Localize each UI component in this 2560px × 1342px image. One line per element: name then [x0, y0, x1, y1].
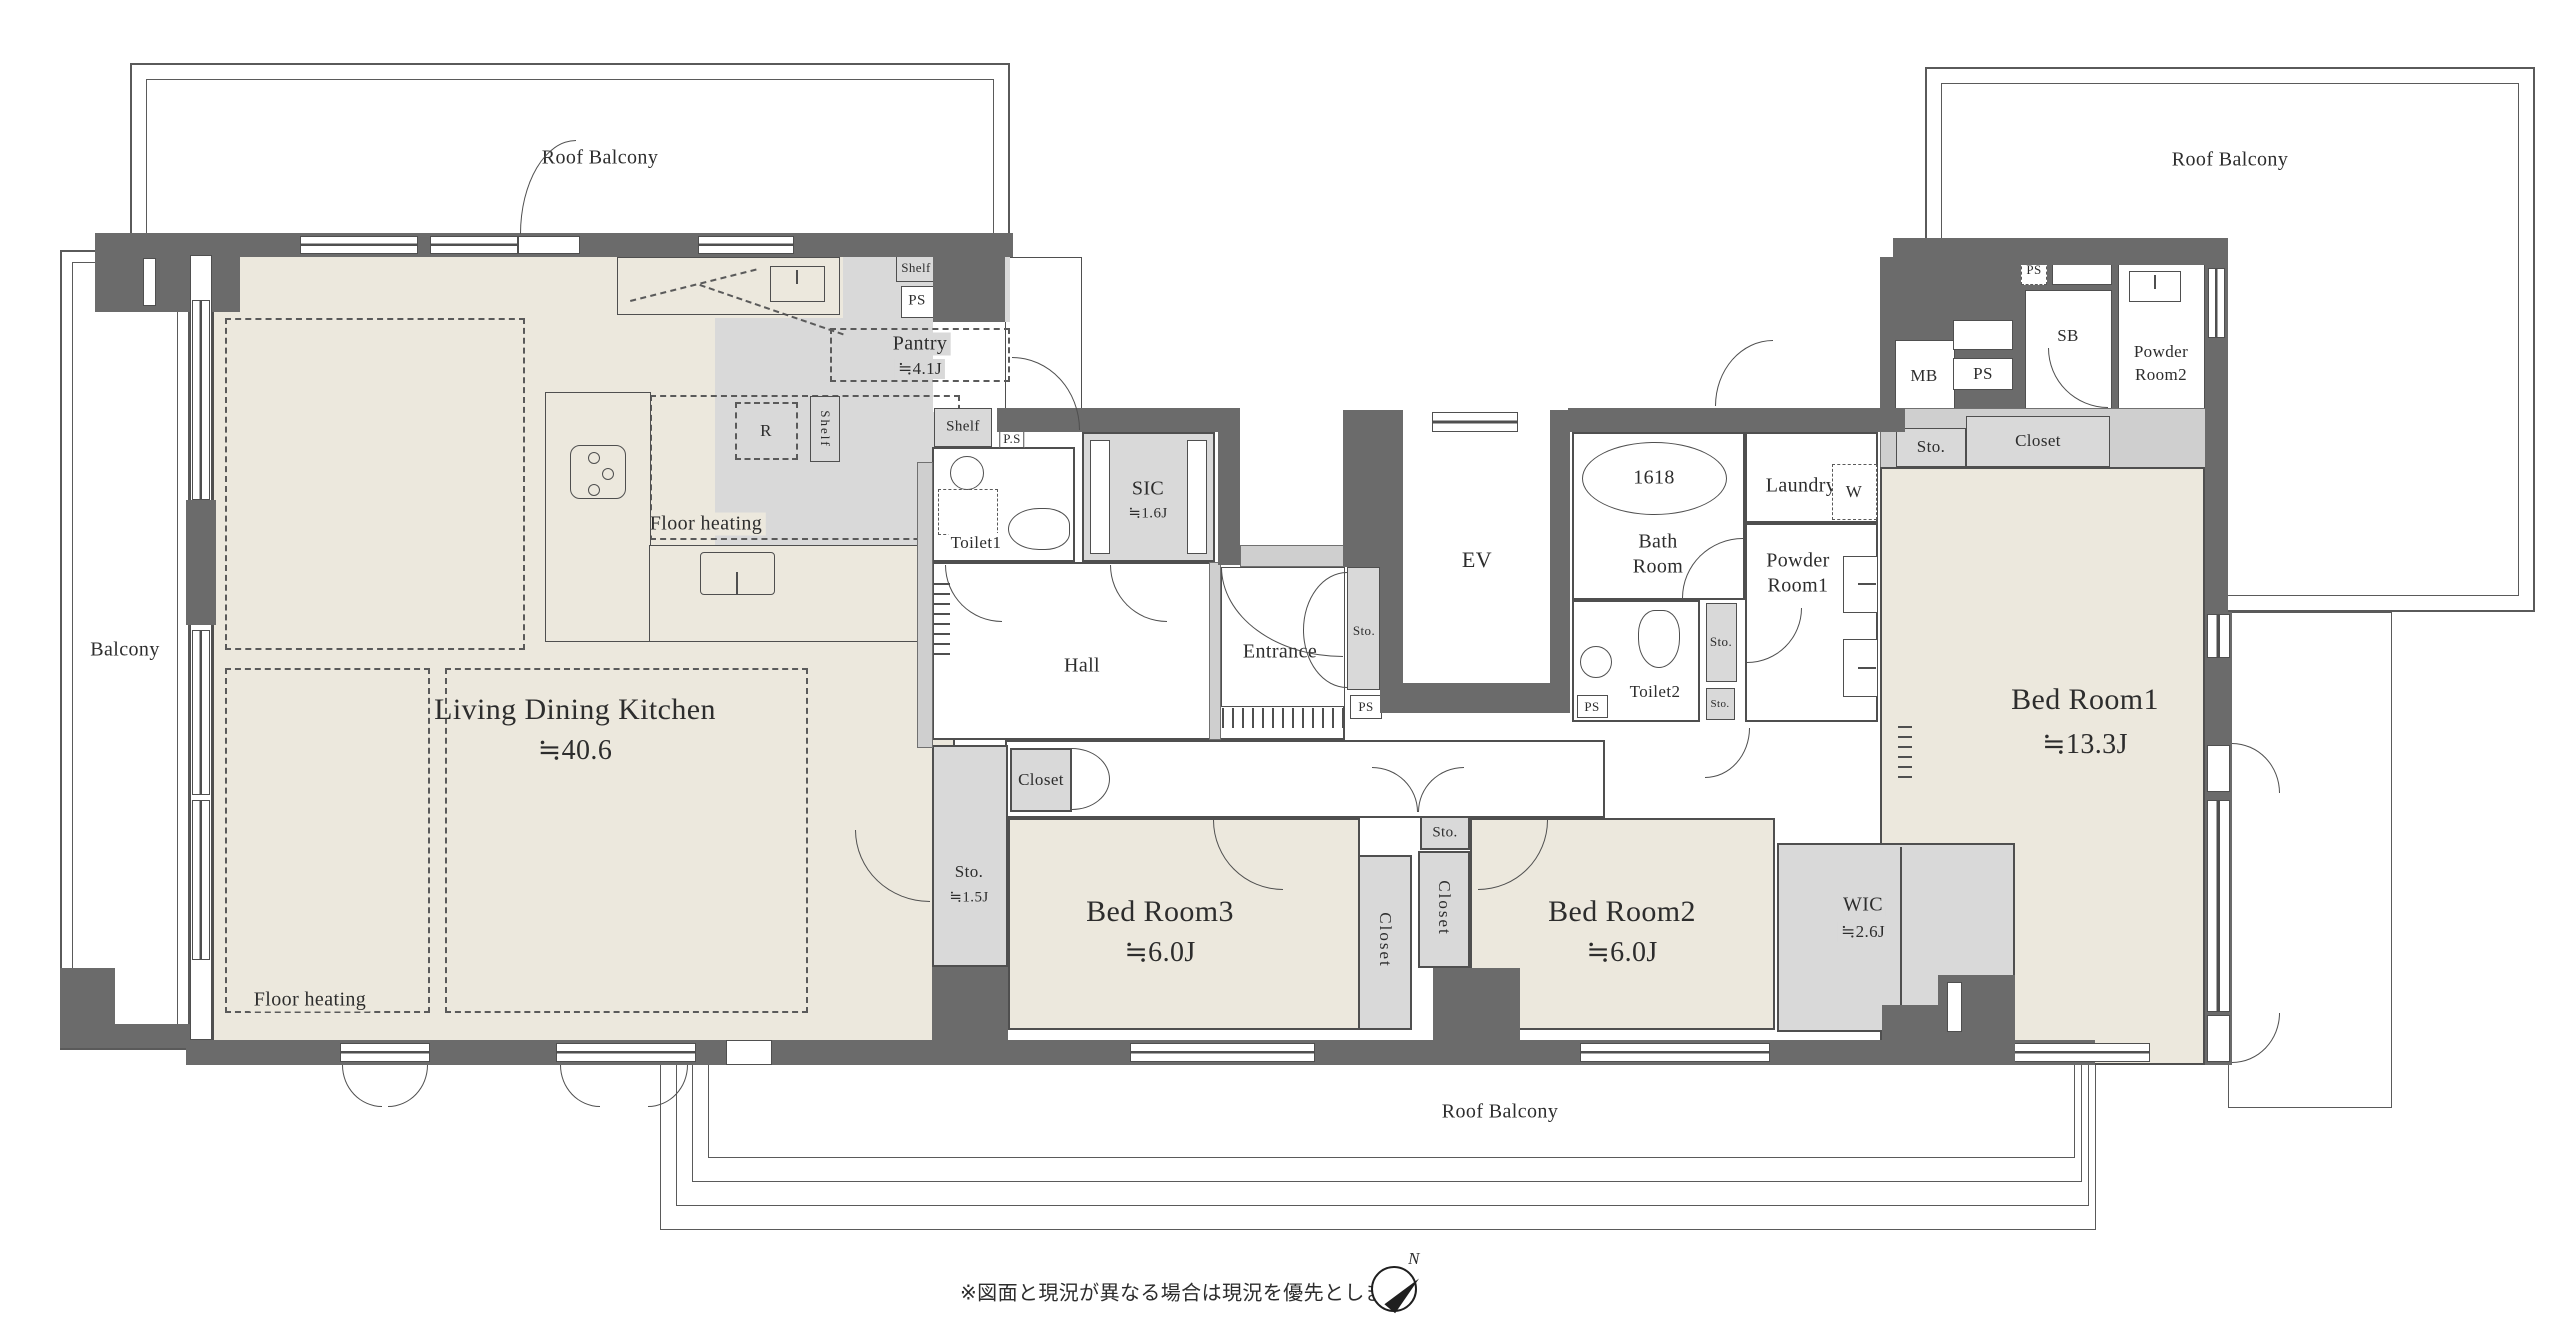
- kitchen-island-arm: [545, 392, 651, 642]
- toilet2-label: Toilet2: [1628, 682, 1683, 702]
- cooktop-burner-3: [588, 484, 600, 496]
- wall-ev-left: [1380, 410, 1403, 713]
- sto-hall-size: ≒1.5J: [949, 888, 988, 907]
- toilet1-bowl: [1008, 508, 1070, 550]
- entrance-step-marks: [1222, 708, 1345, 728]
- sto-top-right-label: Sto.: [1917, 437, 1946, 457]
- wall-bed2-wic-stub: [1882, 1005, 1940, 1040]
- powder1-label-1: Powder: [1766, 550, 1830, 573]
- ev-door-gap: [1432, 412, 1518, 432]
- toilet1-basin: [950, 456, 984, 490]
- entrance-hall-partition: [1209, 562, 1221, 740]
- sto-bath-1-label: Sto.: [1710, 634, 1732, 650]
- bed1-right-window-1: [2207, 614, 2230, 658]
- ev-label: EV: [1462, 547, 1492, 573]
- ps-pantry-label: PS: [908, 293, 926, 310]
- partition-hall-left: [917, 462, 933, 748]
- bed1-right-window-2: [2207, 800, 2230, 1012]
- floor-heating-label-kitchen: Floor heating: [646, 513, 766, 536]
- ldk-top-window-3: [698, 236, 794, 254]
- closet-top-right-label: Closet: [2015, 431, 2061, 451]
- powder2-side-window: [2208, 268, 2225, 338]
- shelf-top-label: Shelf: [901, 260, 930, 276]
- ldk-left-window-1: [192, 300, 210, 500]
- mb-label: MB: [1910, 366, 1937, 386]
- bed3-label: Bed Room3: [1086, 895, 1234, 929]
- toilet1-cabinet: [938, 489, 998, 535]
- closet-mid-left-label: Closet: [1375, 912, 1395, 967]
- footer-note: ※図面と現況が異なる場合は現況を優先とします。: [960, 1277, 1424, 1306]
- wall-entrance-right: [1343, 410, 1382, 567]
- kitchen-island-base: [649, 545, 960, 642]
- ldk-size: ≒40.6: [538, 733, 612, 767]
- counter-sink-faucet: [796, 270, 798, 284]
- ldk-top-window-2: [430, 236, 518, 254]
- wall-ev-right: [1550, 410, 1570, 713]
- wall-sto-hall-bottom: [932, 967, 1008, 1040]
- ldk-balcony-door-gap: [518, 236, 580, 254]
- ldk-bottom-window-1: [340, 1043, 430, 1062]
- bath-label-2: Room: [1633, 556, 1684, 579]
- sto-bath-2-label: Sto.: [1710, 698, 1729, 710]
- ldk-top-window-1: [300, 236, 418, 254]
- entrance-sto-label: Sto.: [1353, 623, 1375, 639]
- bed1-size: ≒13.3J: [2042, 727, 2128, 761]
- refrigerator-label: R: [760, 421, 772, 441]
- washer-label: W: [1846, 482, 1862, 502]
- hall-label: Hall: [1064, 655, 1100, 678]
- wall-closet-mid-bottom: [1433, 968, 1520, 1040]
- wic-label: WIC: [1840, 894, 1886, 917]
- wall-ldk-left-chunk: [186, 500, 216, 625]
- bed1-bottom-window: [2010, 1043, 2150, 1062]
- floor-heating-label-ldk: Floor heating: [250, 989, 370, 1012]
- floor-heating-zone-2: [225, 668, 430, 1013]
- powder2-sink-tick: [2154, 275, 2156, 289]
- powder2-label-2: Room2: [2135, 365, 2187, 385]
- ldk-bottom-window-2: [556, 1043, 696, 1062]
- shelf-toilet1-label: Shelf: [946, 419, 980, 436]
- ldk-awning-arc-1b: [388, 1065, 428, 1107]
- bed1-label: Bed Room1: [2011, 683, 2159, 717]
- wic-divider: [1900, 847, 1902, 1028]
- closet-hall-label: Closet: [1018, 770, 1064, 790]
- closet-mid-right-label: Closet: [1434, 880, 1454, 935]
- wall-bedrooms-bottom: [885, 1040, 2095, 1065]
- wic-size: ≒2.6J: [1838, 922, 1888, 942]
- ldk-left-window-3: [192, 800, 210, 960]
- wic-corner-slit: [1947, 982, 1962, 1032]
- bed2-label: Bed Room2: [1548, 895, 1696, 929]
- compass-north-label: N: [1408, 1249, 1420, 1269]
- bed2-window-track: [1675, 1051, 1767, 1053]
- bed3-size: ≒6.0J: [1124, 935, 1195, 969]
- powder2-label-1: Powder: [2134, 342, 2188, 362]
- roof-balcony-bottom-label: Roof Balcony: [1442, 1101, 1558, 1124]
- powder1-sink-2-tick: [1858, 667, 1876, 669]
- corner-window-slit: [143, 258, 156, 306]
- bed1-wall-marks: [1898, 726, 1912, 778]
- wall-ldk-bottom: [186, 1040, 890, 1065]
- pantry-label: Pantry: [890, 333, 951, 356]
- bed1-right-casement-gap-2: [2207, 1015, 2230, 1062]
- powder1-sink-1-tick: [1858, 583, 1876, 585]
- pantry-shelf-label: Shelf: [817, 410, 833, 447]
- bed2-size: ≒6.0J: [1586, 935, 1657, 969]
- wall-bath-top: [1568, 408, 1905, 432]
- toilet2-door-arc: [1705, 728, 1750, 778]
- ldk-awning-arc-1a: [342, 1065, 382, 1107]
- wic-door-track: [1928, 843, 2000, 845]
- wall-ev-bottom: [1380, 683, 1570, 713]
- bathtub-size-label: 1618: [1633, 467, 1675, 490]
- sic-shelf-left: [1090, 440, 1110, 554]
- wall-sic-right: [1218, 432, 1240, 565]
- balcony-label: Balcony: [90, 639, 159, 662]
- ldk-awning-arc-2a: [560, 1065, 600, 1107]
- ps-box-blank: [1953, 320, 2013, 350]
- powder1-label-2: Room1: [1768, 575, 1829, 598]
- toilet2-bowl: [1638, 610, 1680, 668]
- floor-plan: Roof Balcony Roof Balcony Roof Balcony B…: [0, 0, 2560, 1342]
- roof-balcony-top-right-label: Roof Balcony: [2172, 149, 2288, 172]
- ldk-label: Living Dining Kitchen: [434, 693, 716, 727]
- sto-hall-room: [932, 745, 1008, 967]
- cooktop-burner-2: [602, 468, 614, 480]
- wall-top-left-corner: [95, 233, 240, 312]
- toilet2-ps-label: PS: [1584, 699, 1599, 715]
- entrance-ps-label: PS: [1358, 699, 1373, 715]
- kitchen-sink-faucet: [736, 572, 738, 594]
- corridor-mb-door-arc: [1715, 340, 1773, 406]
- balcony-corner-wall-1: [60, 968, 115, 1048]
- cooktop-burner-1: [588, 452, 600, 464]
- sto-hall-label: Sto.: [955, 862, 984, 882]
- wall-pantry-chunk: [933, 255, 1005, 322]
- entrance-top-wall: [1240, 545, 1345, 567]
- ldk-left-window-2: [192, 630, 210, 795]
- bath-label-1: Bath: [1638, 531, 1677, 554]
- sic-label: SIC: [1132, 478, 1164, 501]
- bed1-right-casement-gap-1: [2207, 745, 2230, 792]
- ldk-bottom-door-gap: [726, 1040, 772, 1065]
- sb-label: SB: [2057, 326, 2079, 346]
- laundry-label: Laundry: [1764, 475, 1839, 498]
- sic-shelf-right: [1187, 440, 1207, 554]
- bed3-window-track: [1222, 1051, 1312, 1053]
- sic-size: ≒1.6J: [1128, 504, 1167, 523]
- floor-heating-zone-1: [225, 318, 525, 650]
- ps-toilet1-label: P.S: [999, 430, 1024, 448]
- toilet1-label: Toilet1: [949, 533, 1004, 553]
- hall-shelf-marks: [934, 577, 950, 655]
- sto-mid-label: Sto.: [1432, 825, 1457, 842]
- toilet2-basin: [1580, 646, 1612, 678]
- ps-box-label: PS: [1973, 364, 1993, 384]
- wall-block-top-right-top: [1893, 238, 2215, 265]
- pantry-size: ≒4.1J: [895, 359, 945, 379]
